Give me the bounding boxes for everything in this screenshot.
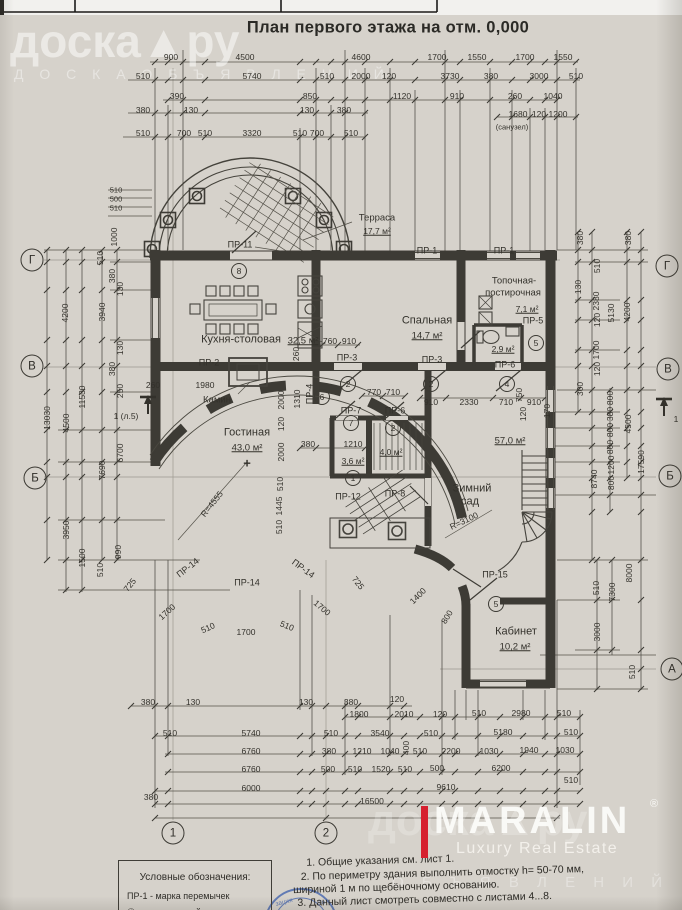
plan-label: Спальная — [402, 316, 452, 327]
plan-label: 510 — [136, 129, 150, 138]
door-mark: 8 — [231, 263, 247, 279]
plan-label: 3540 — [371, 729, 390, 738]
plan-label: 300 — [576, 382, 585, 396]
plan-label: 380 — [301, 440, 315, 449]
plan-label: 850 — [303, 92, 317, 101]
plan-label: постирочная — [485, 288, 541, 298]
legend-title: Условные обозначения: — [140, 872, 251, 883]
door-mark: 2 — [340, 376, 356, 392]
plan-label: 11530 — [78, 385, 87, 408]
plan-label: 1 — [674, 415, 679, 424]
plan-label: 17,7 м² — [363, 227, 391, 236]
plan-label: 1030 — [556, 746, 575, 755]
plan-label: 6760 — [242, 747, 261, 756]
plan-labels-layer: 9004500460017001550170015505105740510200… — [0, 0, 682, 910]
plan-label: 120 — [593, 313, 602, 327]
plan-label: 130 — [299, 698, 313, 707]
plan-label: 16500 — [360, 797, 384, 806]
axis-bubble: Б — [24, 467, 47, 490]
plan-label: 1700 — [237, 628, 256, 637]
plan-label: 1400 — [408, 586, 427, 605]
maralin-logo-name: MARALIN — [434, 800, 630, 843]
plan-label: R=3100 — [449, 511, 480, 531]
plan-label: 130 — [184, 106, 198, 115]
plan-label: 510 — [564, 728, 578, 737]
plan-label: 510 — [276, 477, 285, 491]
plan-label: 120 — [593, 362, 602, 376]
plan-label: 7690 — [98, 461, 107, 480]
plan-label: (санузел) — [496, 123, 528, 131]
plan-label: ПР-2 — [199, 359, 219, 368]
plan-label: сад — [461, 497, 479, 508]
plan-label: ПР-14 — [175, 557, 201, 580]
plan-label: 510 — [200, 621, 216, 635]
plan-label: 120 — [532, 110, 546, 119]
plan-label: ПР-3 — [422, 356, 442, 365]
plan-label: 3,6 м² — [342, 457, 365, 466]
plan-label: 1940 — [520, 746, 539, 755]
door-mark: 6 — [314, 389, 330, 405]
plan-label: 380 — [606, 407, 615, 421]
plan-label: 4,0 м² — [380, 448, 403, 457]
plan-label: ПР-14 — [234, 579, 259, 588]
plan-label: 3000 — [593, 623, 602, 642]
plan-label: 1310 — [293, 390, 302, 409]
plan-label: 510 — [96, 251, 105, 265]
plan-label: 1550 — [554, 53, 573, 62]
plan-label: 990 — [114, 545, 123, 559]
plan-label: 7,1 м² — [516, 305, 539, 314]
plan-label: 1200 — [549, 110, 568, 119]
plan-label: 130 — [300, 106, 314, 115]
door-mark: 5 — [528, 335, 544, 351]
plan-label: 6200 — [492, 764, 511, 773]
plan-label: 130 — [116, 282, 125, 296]
maralin-logo-tagline: Luxury Real Estate — [456, 840, 618, 858]
plan-label: 120 — [382, 72, 396, 81]
plan-label: 3320 — [243, 129, 262, 138]
door-mark: 4 — [499, 376, 515, 392]
plan-label: 510 — [472, 709, 486, 718]
plan-label: 32,5 м² — [288, 336, 319, 346]
plan-label: 1445 — [275, 497, 284, 516]
plan-label: 500 — [110, 195, 123, 203]
plan-label: 1800 — [350, 710, 369, 719]
plan-label: 800 — [440, 609, 455, 626]
plan-label: 910 — [342, 337, 356, 346]
plan-label: 380 — [108, 362, 117, 376]
axis-bubble: Г — [21, 249, 44, 272]
door-mark: 7 — [343, 415, 359, 431]
plan-label: 510 — [110, 186, 123, 194]
plan-label: 510 — [424, 729, 438, 738]
plan-label: 770 — [367, 388, 381, 397]
plan-label: 910 — [450, 92, 464, 101]
axis-bubble: В — [21, 355, 44, 378]
plan-label: 1 (л.5) — [114, 412, 139, 421]
plan-label: 1210 — [353, 747, 372, 756]
plan-label: ПР-12 — [335, 493, 360, 502]
plan-label: 750 — [515, 388, 524, 402]
plan-label: 510 — [320, 72, 334, 81]
plan-label: Топочная- — [492, 276, 536, 286]
plan-label: 1500 — [78, 549, 87, 568]
plan-label: ПР-14 — [290, 558, 316, 580]
plan-label: 800 — [606, 440, 615, 454]
axis-bubble: Б — [659, 465, 682, 488]
plan-label: 700 — [310, 129, 324, 138]
plan-label: R=4555 — [199, 490, 224, 519]
plan-label: ПР-6 — [385, 407, 405, 416]
plan-label: 2000 — [277, 391, 286, 410]
plan-label: 1700 — [157, 603, 177, 622]
plan-label: 10,2 м² — [500, 642, 531, 652]
plan-label: 1700 — [428, 53, 447, 62]
plan-label: ПР-3 — [337, 354, 357, 363]
plan-label: 510 — [96, 563, 105, 577]
plan-label: 1120 — [393, 92, 411, 101]
plan-label: Гостиная — [224, 428, 270, 439]
plan-label: 2000 — [277, 443, 286, 462]
plan-label: Терраса — [359, 213, 395, 223]
plan-label: 380 — [576, 231, 585, 245]
plan-label: Зимний — [453, 484, 492, 495]
plan-label: 43,0 м² — [232, 443, 263, 453]
plan-label: 1210 — [344, 440, 363, 449]
door-mark: 1 — [345, 470, 361, 486]
plan-label: 910 — [424, 398, 438, 407]
plan-label: 14,7 м² — [412, 331, 443, 341]
plan-label: ПР-8 — [385, 490, 405, 499]
plan-label: 380 — [141, 698, 155, 707]
plan-label: 2380 — [592, 292, 601, 311]
plan-label: ПР-1 — [494, 247, 514, 256]
plan-label: 3950 — [62, 521, 71, 540]
plan-label: 510 — [110, 204, 123, 212]
plan-label: 120 — [390, 695, 404, 704]
plan-label: 390 — [170, 92, 184, 101]
plan-label: 510 — [163, 729, 177, 738]
plan-label: 2,9 м² — [492, 345, 515, 354]
plan-label: 725 — [122, 577, 137, 593]
plan-label: 5740 — [242, 729, 261, 738]
axis-bubble: 2 — [315, 822, 338, 845]
plan-label: 120 — [519, 407, 528, 421]
plan-label: 2330 — [460, 398, 479, 407]
plan-label: ПР-5 — [523, 317, 543, 326]
plan-label: 700 — [177, 129, 191, 138]
plan-label: 6700 — [116, 444, 125, 463]
plan-label: 6760 — [242, 765, 261, 774]
plan-label: 8000 — [625, 564, 634, 583]
axis-bubble: А — [661, 658, 682, 681]
plan-label: ПР-11 — [228, 241, 253, 250]
plan-label: 510 — [198, 129, 212, 138]
plan-label: 380 — [624, 231, 633, 245]
plan-label: Кухня-столовая — [201, 335, 281, 346]
plan-label: 900 — [164, 53, 178, 62]
plan-label: 9610 — [437, 783, 456, 792]
plan-label: 800 — [607, 476, 616, 490]
plan-label: 710 — [499, 398, 513, 407]
plan-label: 120 — [433, 710, 447, 719]
plan-label: 8740 — [590, 470, 599, 489]
plan-label: 1000 — [110, 228, 119, 247]
plan-label: 1040 — [381, 747, 400, 756]
plan-label: 510 — [344, 129, 358, 138]
registered-trademark-icon: ® — [650, 798, 658, 810]
legend-item: ПР-1 - марка перемычек — [127, 891, 230, 901]
plan-label: 1700 — [312, 599, 332, 618]
plan-label: 1550 — [468, 53, 487, 62]
plan-label: 4500 — [62, 414, 71, 433]
plan-label: 4200 — [61, 304, 70, 323]
plan-label: 380 — [337, 106, 351, 115]
plan-label: 380 — [136, 106, 150, 115]
plan-label: 510 — [592, 581, 601, 595]
plan-label: 510 — [275, 520, 284, 534]
plan-label: 1040 — [544, 92, 563, 101]
plan-label: 800 — [606, 391, 615, 405]
plan-label: 1520 — [372, 765, 391, 774]
plan-label: 250 — [116, 384, 125, 398]
plan-label: 57,0 м² — [495, 436, 526, 446]
door-mark: 2 — [385, 420, 401, 436]
axis-bubble: Г — [656, 255, 679, 278]
plan-label: 260 — [146, 381, 160, 390]
plan-label: 120 — [277, 417, 286, 431]
axis-bubble: В — [657, 358, 680, 381]
plan-label: 3730 — [441, 72, 460, 81]
plan-label: 510 — [569, 72, 583, 81]
plan-label: 4600 — [352, 53, 371, 62]
plan-label: 510 — [293, 129, 307, 138]
plan-label: 260 — [292, 347, 301, 361]
plan-label: 1030 — [480, 747, 499, 756]
plan-label: 3940 — [98, 303, 107, 322]
plan-label: 380 — [344, 698, 358, 707]
plan-label: 760 — [323, 337, 337, 346]
plan-label: 510 — [564, 776, 578, 785]
plan-label: 130 — [574, 280, 583, 294]
plan-label: 2010 — [395, 710, 414, 719]
plan-label: 3000 — [530, 72, 549, 81]
plan-label: 5740 — [243, 72, 262, 81]
plan-label: 510 — [279, 619, 295, 632]
plan-label: 800 — [606, 423, 615, 437]
plan-label: 4500 — [236, 53, 255, 62]
plan-label: 510 — [593, 259, 602, 273]
plan-label: 7300 — [608, 583, 617, 602]
plan-label: 2200 — [442, 747, 461, 756]
plan-label: ПР-1 — [417, 247, 437, 256]
plan-label: 500 — [321, 765, 335, 774]
plan-label: 1700 — [516, 53, 535, 62]
plan-label: 1680 — [509, 110, 528, 119]
plan-label: Камин — [203, 395, 231, 405]
legend-box: Условные обозначения: ПР-1 - марка перем… — [118, 860, 272, 910]
door-mark: 5 — [488, 596, 504, 612]
plan-label: 5130 — [607, 304, 616, 323]
plan-label: 725 — [350, 575, 365, 591]
plan-label: 910 — [527, 398, 541, 407]
plan-label: 4500 — [624, 415, 633, 434]
plan-label: 510 — [557, 709, 571, 718]
plan-label: 4200 — [623, 303, 632, 322]
plan-label: 400 — [402, 741, 411, 755]
plan-label: 17590 — [637, 450, 646, 474]
plan-label: 6000 — [242, 784, 261, 793]
plan-label: 380 — [322, 747, 336, 756]
plan-label: 2980 — [512, 709, 531, 718]
plan-label: 380 — [484, 72, 498, 81]
maralin-logo: MARALIN ® Luxury Real Estate — [414, 798, 674, 862]
plan-label: 1980 — [196, 381, 215, 390]
plan-label: 130 — [116, 341, 125, 355]
plan-label: 130 — [186, 698, 200, 707]
scanned-floor-plan-page: зация со доска▲ру Д О С К А О Б Ъ Я В Л … — [0, 0, 682, 910]
plan-label: ПР-4 — [306, 384, 315, 404]
plan-label: ПР-6 — [495, 361, 515, 370]
plan-label: 510 — [398, 765, 412, 774]
plan-label: 2000 — [352, 72, 371, 81]
plan-label: 510 — [324, 729, 338, 738]
maralin-logo-bar — [421, 806, 428, 858]
plan-label: 170 — [543, 404, 552, 418]
plan-label: + — [243, 457, 251, 470]
plan-label: 1700 — [592, 341, 601, 360]
plan-label: 710 — [386, 388, 400, 397]
plan-label: 13030 — [43, 406, 52, 430]
plan-label: 260 — [508, 92, 522, 101]
plan-label: Кабинет — [495, 627, 537, 638]
plan-label: ПР-15 — [482, 571, 507, 580]
plan-label: 510 — [348, 765, 362, 774]
door-mark: 2 — [423, 376, 439, 392]
plan-label: 380 — [144, 793, 158, 802]
axis-bubble: 1 — [162, 822, 185, 845]
plan-label: 1200 — [607, 456, 616, 475]
plan-label: 500 — [430, 764, 444, 773]
plan-label: 510 — [413, 747, 427, 756]
plan-label: 5180 — [494, 728, 513, 737]
plan-label: 510 — [628, 665, 637, 679]
plan-label: 510 — [136, 72, 150, 81]
